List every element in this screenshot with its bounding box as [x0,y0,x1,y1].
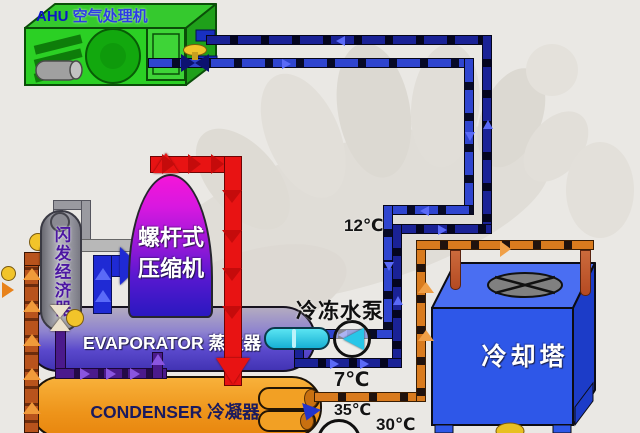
chiller-plant-diagram: AHU 空气处理机 冷却塔 EVAPORATOR 蒸发器 CONDENSER 冷… [0,0,640,433]
chilled-supply-pipe-right-v [482,35,492,234]
flow-arrow-up-icon [23,334,41,346]
flow-arrow-right-icon [106,368,116,380]
temp-cooling-supply: 35℃ [334,400,371,420]
ahu-valve-icon [195,54,209,72]
pump-impeller-icon [343,328,364,350]
ahu-code: AHU [36,8,69,25]
ahu-label: AHU 空气处理机 [36,5,148,26]
flow-arrow-up-icon [23,402,41,414]
side-valve-icon [2,282,14,298]
temp-chilled-supply: 7℃ [334,367,369,392]
cooling-supply-pipe-riser [416,240,426,402]
flow-arrow-up-icon [483,120,493,129]
tower-inlet-drop-right [580,250,591,296]
suction-pipe-v [93,255,112,314]
compressor-label-line2: 压缩机 [134,251,208,283]
flow-arrow-right-icon [130,368,140,380]
cooling-tower-label: 冷却塔 [470,337,580,373]
flow-arrow-right-icon [211,154,224,174]
temp-cooling-return: 30℃ [376,415,416,433]
flow-arrow-left-icon [336,36,345,46]
flow-arrow-left-icon [420,206,429,216]
flow-arrow-down-icon [222,268,242,281]
temp-chilled-return: 12℃ [344,216,384,236]
flow-arrow-down-icon [222,190,242,203]
flow-arrow-right-icon [80,368,90,380]
flow-arrow-up-icon [95,290,111,302]
flow-arrow-up-icon [23,368,41,380]
compressor-label-line1: 螺杆式 [134,220,208,252]
nozzle-seam [292,329,296,348]
flow-arrow-up-icon [95,268,111,280]
flow-arrow-right-icon [500,241,511,257]
flow-arrow-right-icon [438,225,447,235]
side-valve-handle [1,266,16,281]
flow-arrow-up-icon [23,300,41,312]
flow-arrow-up-icon [418,330,434,341]
evaporator-nozzle [264,327,330,350]
flow-arrow-up-icon [418,282,434,293]
ahu-valve-icon [181,54,195,72]
condenser-label: CONDENSER 冷凝器 [60,399,290,424]
flow-arrow-down-icon [222,230,242,243]
flow-arrow-up-icon [23,268,41,280]
flow-arrow-down-icon [222,306,242,319]
expansion-valve-handle [66,309,84,327]
flow-arrow-right-icon [188,154,201,174]
evaporator-label: EVAPORATOR 蒸发器 [52,330,292,355]
flow-arrow-down-icon [465,132,475,141]
flow-arrow-right-icon [282,59,291,69]
discharge-arrow-icon [216,358,250,384]
chilled-water-pump-label: 冷冻水泵 [296,295,396,325]
flow-arrow-up-icon [151,354,165,365]
tower-inlet-drop-left [450,250,461,290]
flow-arrow-down-icon [384,262,394,271]
flow-arrow-right-icon [162,154,175,174]
chilled-supply-pipe-top [206,35,492,45]
ahu-name: 空气处理机 [73,8,148,25]
